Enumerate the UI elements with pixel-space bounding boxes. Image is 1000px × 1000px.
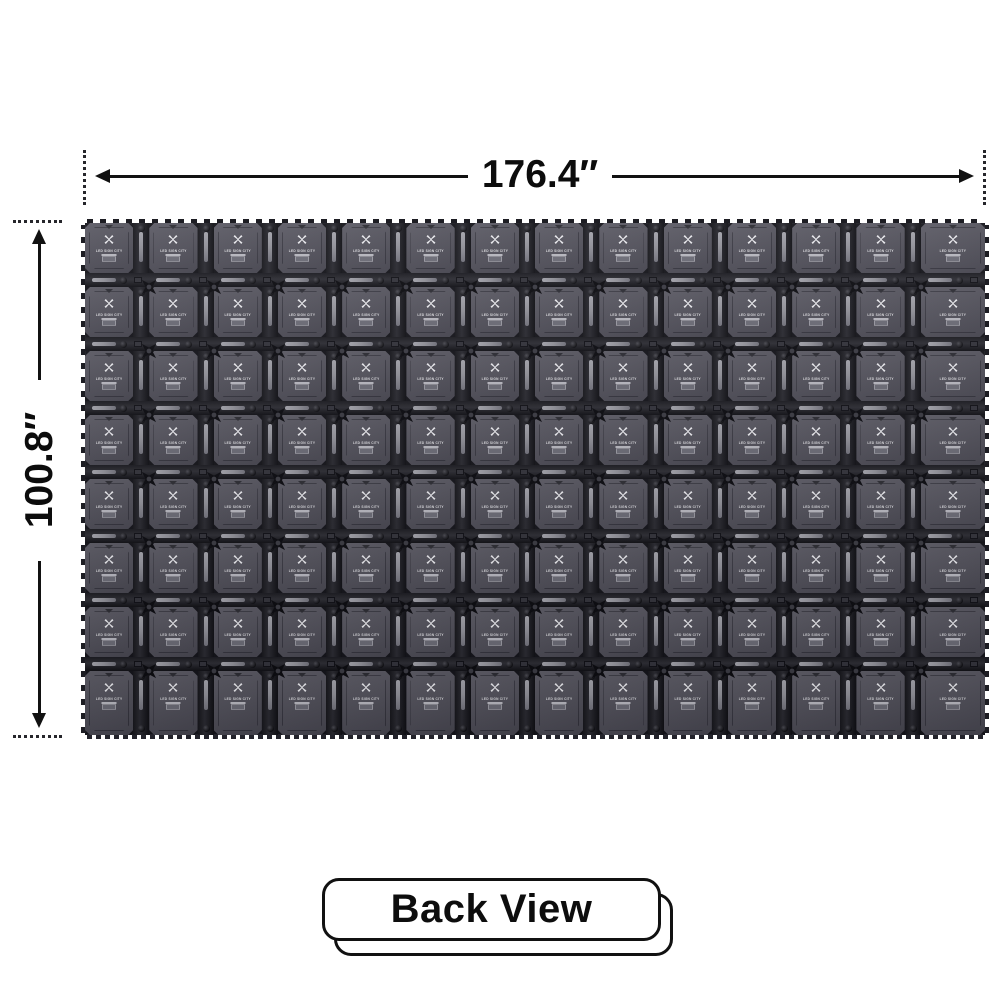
handle-bar bbox=[928, 278, 952, 282]
handle-bar bbox=[461, 488, 465, 518]
screw-icon bbox=[699, 341, 706, 348]
chevron-mark-icon bbox=[619, 673, 627, 677]
chevron-mark-icon bbox=[491, 289, 499, 293]
brand-x-logo-icon bbox=[946, 681, 959, 694]
chevron-mark-icon bbox=[491, 673, 499, 677]
chevron-mark-icon bbox=[555, 481, 563, 485]
handle-bar bbox=[92, 534, 116, 538]
corner-lock-icon bbox=[525, 277, 545, 297]
brand-x-logo-icon bbox=[617, 361, 630, 374]
screw-icon bbox=[506, 661, 513, 668]
spec-label bbox=[360, 257, 373, 261]
handle-bar bbox=[654, 552, 658, 582]
brand-text: LED SIGN CITY bbox=[482, 697, 508, 701]
spec-label bbox=[617, 257, 630, 261]
brand-x-logo-icon bbox=[946, 553, 959, 566]
spec-label bbox=[874, 705, 887, 709]
spec-label bbox=[810, 705, 823, 709]
button-label: Back View bbox=[391, 887, 593, 932]
brand-subline bbox=[616, 510, 631, 512]
handle-bar bbox=[461, 232, 465, 262]
chevron-mark-icon bbox=[169, 673, 177, 677]
spec-label bbox=[231, 449, 244, 453]
handle-bar bbox=[671, 470, 695, 474]
screw-icon bbox=[827, 661, 834, 668]
brand-text: LED SIGN CITY bbox=[353, 313, 379, 317]
handle-bar bbox=[671, 278, 695, 282]
handle-bar bbox=[799, 534, 823, 538]
spec-label bbox=[681, 513, 694, 517]
handle-bar bbox=[268, 680, 272, 710]
brand-x-logo-icon bbox=[167, 361, 180, 374]
panel-face: LED SIGN CITY bbox=[85, 287, 133, 337]
handle-bar bbox=[478, 406, 502, 410]
spec-label bbox=[946, 513, 959, 517]
screw-icon bbox=[377, 405, 384, 412]
corner-lock-icon bbox=[525, 405, 545, 425]
handle-bar bbox=[349, 406, 373, 410]
spec-label bbox=[946, 257, 959, 261]
screw-icon bbox=[249, 341, 256, 348]
corner-lock-icon bbox=[525, 661, 545, 681]
chevron-mark-icon bbox=[234, 545, 242, 549]
chevron-mark-icon bbox=[234, 225, 242, 229]
brand-subline bbox=[680, 702, 695, 704]
corner-lock-icon bbox=[461, 597, 481, 617]
handle-bar bbox=[718, 488, 722, 518]
panel-face: LED SIGN CITY bbox=[85, 671, 133, 735]
spec-label bbox=[681, 321, 694, 325]
brand-subline bbox=[744, 574, 759, 576]
screw-icon bbox=[570, 341, 577, 348]
brand-text: LED SIGN CITY bbox=[160, 441, 186, 445]
screw-icon bbox=[331, 725, 338, 732]
corner-lock-icon bbox=[846, 405, 866, 425]
spec-label bbox=[231, 321, 244, 325]
handle-bar bbox=[735, 470, 759, 474]
corner-lock-icon bbox=[396, 469, 416, 489]
brand-subline bbox=[809, 446, 824, 448]
screw-icon bbox=[120, 405, 127, 412]
brand-x-logo-icon bbox=[424, 361, 437, 374]
brand-x-logo-icon bbox=[810, 297, 823, 310]
corner-lock-icon bbox=[461, 533, 481, 553]
spec-label bbox=[103, 513, 116, 517]
panel-face: LED SIGN CITY bbox=[406, 223, 454, 273]
brand-subline bbox=[873, 446, 888, 448]
spec-label bbox=[295, 385, 308, 389]
screw-icon bbox=[956, 533, 963, 540]
handle-bar bbox=[139, 680, 143, 710]
corner-lock-icon bbox=[268, 661, 288, 681]
brand-text: LED SIGN CITY bbox=[610, 313, 636, 317]
brand-text: LED SIGN CITY bbox=[417, 697, 443, 701]
chevron-mark-icon bbox=[748, 225, 756, 229]
spec-label bbox=[424, 513, 437, 517]
chevron-mark-icon bbox=[427, 353, 435, 357]
brand-x-logo-icon bbox=[617, 681, 630, 694]
screw-icon bbox=[892, 341, 899, 348]
chevron-mark-icon bbox=[684, 225, 692, 229]
chevron-mark-icon bbox=[362, 545, 370, 549]
screw-icon bbox=[910, 225, 917, 232]
handle-bar bbox=[413, 598, 437, 602]
screw-icon bbox=[506, 597, 513, 604]
brand-subline bbox=[680, 446, 695, 448]
spec-label bbox=[810, 577, 823, 581]
chevron-mark-icon bbox=[684, 289, 692, 293]
chevron-mark-icon bbox=[169, 609, 177, 613]
chevron-mark-icon bbox=[491, 481, 499, 485]
handle-bar bbox=[782, 360, 786, 390]
brand-text: LED SIGN CITY bbox=[867, 633, 893, 637]
brand-x-logo-icon bbox=[810, 617, 823, 630]
chevron-mark-icon bbox=[234, 609, 242, 613]
screw-icon bbox=[249, 533, 256, 540]
corner-lock-icon bbox=[332, 341, 352, 361]
brand-x-logo-icon bbox=[167, 681, 180, 694]
brand-subline bbox=[552, 446, 567, 448]
back-view-button[interactable]: Back View bbox=[322, 878, 678, 962]
spec-label bbox=[231, 385, 244, 389]
screw-icon bbox=[910, 725, 917, 732]
handle-bar bbox=[542, 534, 566, 538]
screw-icon bbox=[185, 533, 192, 540]
screw-icon bbox=[442, 533, 449, 540]
chevron-mark-icon bbox=[555, 353, 563, 357]
brand-subline bbox=[230, 254, 245, 256]
handle-bar bbox=[413, 406, 437, 410]
screw-icon bbox=[781, 225, 788, 232]
handle-bar bbox=[606, 278, 630, 282]
handle-bar bbox=[846, 680, 850, 710]
brand-x-logo-icon bbox=[553, 297, 566, 310]
handle-bar bbox=[332, 680, 336, 710]
spec-label bbox=[946, 385, 959, 389]
brand-text: LED SIGN CITY bbox=[96, 569, 122, 573]
brand-text: LED SIGN CITY bbox=[940, 377, 966, 381]
brand-x-logo-icon bbox=[360, 617, 373, 630]
handle-bar bbox=[718, 360, 722, 390]
brand-subline bbox=[945, 510, 960, 512]
corner-lock-icon bbox=[396, 341, 416, 361]
screw-icon bbox=[892, 597, 899, 604]
corner-lock-icon bbox=[461, 405, 481, 425]
brand-subline bbox=[616, 382, 631, 384]
brand-x-logo-icon bbox=[295, 425, 308, 438]
brand-x-logo-icon bbox=[810, 425, 823, 438]
spec-label bbox=[874, 385, 887, 389]
screw-icon bbox=[506, 277, 513, 284]
handle-bar bbox=[396, 552, 400, 582]
corner-lock-icon bbox=[589, 277, 609, 297]
brand-subline bbox=[423, 254, 438, 256]
brand-subline bbox=[230, 510, 245, 512]
brand-text: LED SIGN CITY bbox=[940, 633, 966, 637]
brand-x-logo-icon bbox=[424, 233, 437, 246]
chevron-mark-icon bbox=[427, 225, 435, 229]
corner-lock-icon bbox=[846, 469, 866, 489]
handle-bar bbox=[718, 680, 722, 710]
spec-label bbox=[681, 641, 694, 645]
spec-label bbox=[874, 577, 887, 581]
spec-label bbox=[103, 385, 116, 389]
handle-bar bbox=[204, 296, 208, 326]
corner-lock-icon bbox=[654, 341, 674, 361]
brand-x-logo-icon bbox=[295, 681, 308, 694]
chevron-mark-icon bbox=[427, 609, 435, 613]
corner-lock-icon bbox=[461, 341, 481, 361]
corner-lock-icon bbox=[654, 277, 674, 297]
brand-subline bbox=[166, 382, 181, 384]
brand-x-logo-icon bbox=[553, 617, 566, 630]
handle-bar bbox=[799, 470, 823, 474]
chevron-mark-icon bbox=[555, 673, 563, 677]
brand-subline bbox=[487, 510, 502, 512]
screw-icon bbox=[185, 469, 192, 476]
screw-icon bbox=[185, 661, 192, 668]
handle-bar bbox=[718, 232, 722, 262]
chevron-mark-icon bbox=[684, 545, 692, 549]
corner-lock-icon bbox=[332, 277, 352, 297]
brand-x-logo-icon bbox=[745, 233, 758, 246]
brand-text: LED SIGN CITY bbox=[482, 313, 508, 317]
brand-subline bbox=[945, 318, 960, 320]
chevron-mark-icon bbox=[619, 225, 627, 229]
chevron-mark-icon bbox=[427, 481, 435, 485]
spec-label bbox=[553, 321, 566, 325]
spec-label bbox=[681, 257, 694, 261]
screw-icon bbox=[956, 277, 963, 284]
spec-label bbox=[488, 321, 501, 325]
screw-icon bbox=[203, 225, 210, 232]
brand-text: LED SIGN CITY bbox=[610, 697, 636, 701]
chevron-mark-icon bbox=[877, 225, 885, 229]
brand-x-logo-icon bbox=[295, 489, 308, 502]
handle-bar bbox=[349, 598, 373, 602]
handle-bar bbox=[156, 342, 180, 346]
chevron-mark-icon bbox=[105, 225, 113, 229]
handle-bar bbox=[542, 598, 566, 602]
brand-subline bbox=[552, 254, 567, 256]
chevron-mark-icon bbox=[298, 481, 306, 485]
handle-bar bbox=[332, 360, 336, 390]
brand-x-logo-icon bbox=[488, 553, 501, 566]
screw-icon bbox=[120, 661, 127, 668]
chevron-mark-icon bbox=[169, 417, 177, 421]
latch-clip bbox=[970, 597, 978, 603]
handle-bar bbox=[156, 470, 180, 474]
brand-subline bbox=[744, 318, 759, 320]
brand-x-logo-icon bbox=[424, 489, 437, 502]
chevron-mark-icon bbox=[877, 673, 885, 677]
brand-subline bbox=[809, 638, 824, 640]
brand-subline bbox=[945, 382, 960, 384]
corner-lock-icon bbox=[396, 277, 416, 297]
chevron-mark-icon bbox=[234, 673, 242, 677]
handle-bar bbox=[525, 360, 529, 390]
handle-bar bbox=[911, 552, 915, 582]
handle-bar bbox=[928, 598, 952, 602]
screw-icon bbox=[460, 225, 467, 232]
screw-icon bbox=[956, 469, 963, 476]
spec-label bbox=[681, 385, 694, 389]
panel-face: LED SIGN CITY bbox=[471, 223, 519, 273]
brand-x-logo-icon bbox=[553, 553, 566, 566]
chevron-mark-icon bbox=[812, 353, 820, 357]
spec-label bbox=[946, 449, 959, 453]
led-panel-wall: LED SIGN CITYLED SIGN CITYLED SIGN CITYL… bbox=[85, 223, 985, 735]
brand-x-logo-icon bbox=[424, 553, 437, 566]
handle-bar bbox=[606, 598, 630, 602]
corner-lock-icon bbox=[525, 597, 545, 617]
brand-x-logo-icon bbox=[617, 297, 630, 310]
brand-x-logo-icon bbox=[424, 681, 437, 694]
spec-label bbox=[874, 321, 887, 325]
handle-bar bbox=[268, 360, 272, 390]
handle-bar bbox=[735, 534, 759, 538]
corner-lock-icon bbox=[461, 469, 481, 489]
screw-icon bbox=[763, 661, 770, 668]
brand-text: LED SIGN CITY bbox=[353, 633, 379, 637]
chevron-mark-icon bbox=[105, 481, 113, 485]
brand-subline bbox=[552, 574, 567, 576]
screw-icon bbox=[267, 725, 274, 732]
corner-lock-icon bbox=[782, 661, 802, 681]
brand-text: LED SIGN CITY bbox=[482, 569, 508, 573]
spec-label bbox=[553, 705, 566, 709]
brand-subline bbox=[359, 446, 374, 448]
brand-x-logo-icon bbox=[874, 425, 887, 438]
screw-icon bbox=[845, 725, 852, 732]
corner-lock-icon bbox=[589, 405, 609, 425]
screw-icon bbox=[442, 277, 449, 284]
brand-x-logo-icon bbox=[103, 553, 116, 566]
brand-text: LED SIGN CITY bbox=[353, 377, 379, 381]
brand-subline bbox=[230, 574, 245, 576]
handle-bar bbox=[911, 680, 915, 710]
brand-x-logo-icon bbox=[810, 553, 823, 566]
chevron-mark-icon bbox=[949, 417, 957, 421]
brand-x-logo-icon bbox=[488, 233, 501, 246]
corner-lock-icon bbox=[332, 597, 352, 617]
chevron-mark-icon bbox=[684, 481, 692, 485]
brand-x-logo-icon bbox=[167, 489, 180, 502]
chevron-mark-icon bbox=[491, 353, 499, 357]
brand-subline bbox=[873, 254, 888, 256]
handle-bar bbox=[782, 296, 786, 326]
spec-label bbox=[424, 449, 437, 453]
brand-text: LED SIGN CITY bbox=[482, 377, 508, 381]
chevron-mark-icon bbox=[555, 289, 563, 293]
chevron-mark-icon bbox=[748, 609, 756, 613]
spec-label bbox=[103, 705, 116, 709]
screw-icon bbox=[635, 341, 642, 348]
brand-text: LED SIGN CITY bbox=[417, 441, 443, 445]
handle-bar bbox=[349, 342, 373, 346]
brand-subline bbox=[945, 638, 960, 640]
brand-text: LED SIGN CITY bbox=[546, 377, 572, 381]
corner-lock-icon bbox=[139, 277, 159, 297]
brand-text: LED SIGN CITY bbox=[224, 441, 250, 445]
handle-bar bbox=[413, 342, 437, 346]
brand-subline bbox=[680, 638, 695, 640]
brand-x-logo-icon bbox=[167, 233, 180, 246]
handle-bar bbox=[268, 424, 272, 454]
brand-x-logo-icon bbox=[360, 553, 373, 566]
brand-text: LED SIGN CITY bbox=[610, 569, 636, 573]
brand-x-logo-icon bbox=[103, 489, 116, 502]
handle-bar bbox=[478, 342, 502, 346]
spec-label bbox=[360, 321, 373, 325]
brand-x-logo-icon bbox=[360, 489, 373, 502]
chevron-mark-icon bbox=[105, 609, 113, 613]
chevron-mark-icon bbox=[812, 225, 820, 229]
handle-bar bbox=[671, 662, 695, 666]
screw-icon bbox=[956, 597, 963, 604]
handle-bar bbox=[349, 662, 373, 666]
chevron-mark-icon bbox=[949, 481, 957, 485]
screw-icon bbox=[506, 405, 513, 412]
handle-bar bbox=[542, 470, 566, 474]
brand-x-logo-icon bbox=[167, 425, 180, 438]
brand-subline bbox=[359, 254, 374, 256]
chevron-mark-icon bbox=[877, 481, 885, 485]
screw-icon bbox=[699, 597, 706, 604]
corner-lock-icon bbox=[332, 405, 352, 425]
brand-subline bbox=[680, 510, 695, 512]
brand-x-logo-icon bbox=[946, 361, 959, 374]
chevron-mark-icon bbox=[877, 417, 885, 421]
brand-subline bbox=[809, 382, 824, 384]
screw-icon bbox=[120, 277, 127, 284]
corner-lock-icon bbox=[718, 277, 738, 297]
corner-lock-icon bbox=[396, 661, 416, 681]
panel-face: LED SIGN CITY bbox=[85, 415, 133, 465]
spec-label bbox=[681, 705, 694, 709]
handle-bar bbox=[863, 470, 887, 474]
handle-bar bbox=[911, 232, 915, 262]
screw-icon bbox=[506, 469, 513, 476]
screw-icon bbox=[267, 225, 274, 232]
brand-x-logo-icon bbox=[360, 361, 373, 374]
screw-icon bbox=[699, 277, 706, 284]
brand-subline bbox=[945, 446, 960, 448]
corner-lock-icon bbox=[911, 469, 931, 489]
brand-subline bbox=[873, 510, 888, 512]
brand-subline bbox=[616, 318, 631, 320]
spec-label bbox=[488, 513, 501, 517]
spec-label bbox=[745, 321, 758, 325]
corner-lock-icon bbox=[846, 277, 866, 297]
chevron-mark-icon bbox=[427, 673, 435, 677]
spec-label bbox=[103, 257, 116, 261]
handle-bar bbox=[92, 662, 116, 666]
brand-text: LED SIGN CITY bbox=[482, 441, 508, 445]
corner-lock-icon bbox=[911, 341, 931, 361]
brand-subline bbox=[809, 254, 824, 256]
handle-bar bbox=[671, 406, 695, 410]
screw-icon bbox=[377, 661, 384, 668]
brand-text: LED SIGN CITY bbox=[610, 505, 636, 509]
chevron-mark-icon bbox=[298, 225, 306, 229]
brand-x-logo-icon bbox=[874, 233, 887, 246]
handle-bar bbox=[156, 598, 180, 602]
brand-text: LED SIGN CITY bbox=[940, 569, 966, 573]
spec-label bbox=[488, 705, 501, 709]
spec-label bbox=[617, 321, 630, 325]
brand-subline bbox=[423, 382, 438, 384]
